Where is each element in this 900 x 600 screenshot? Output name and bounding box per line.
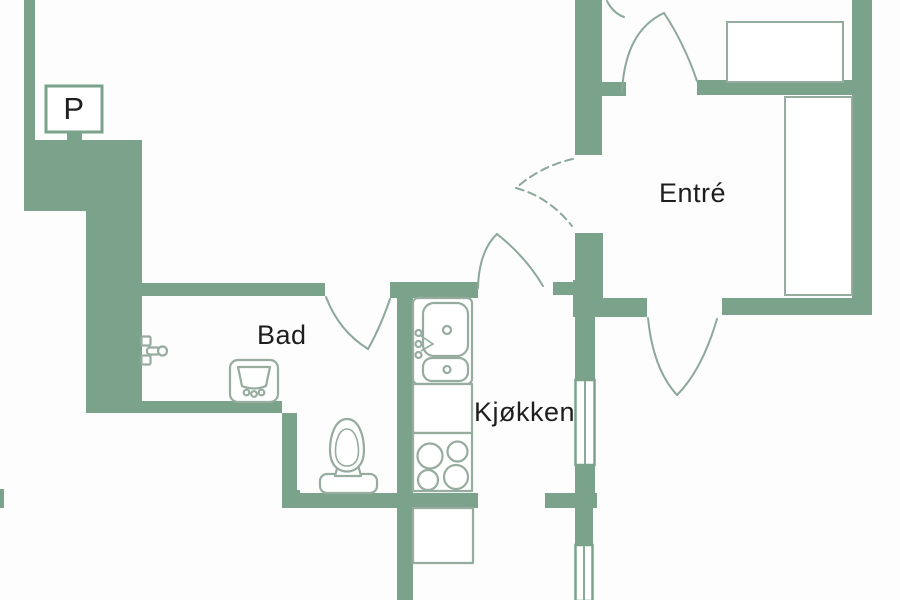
wall-kitchen-east-b [575, 463, 595, 493]
wall-entry-north-vertical [575, 0, 602, 155]
kitchen-door-icon [478, 234, 543, 288]
stove-burner [444, 465, 468, 489]
wardrobe-top-room-icon [727, 22, 843, 82]
lower-counter-icon [413, 508, 473, 563]
stove-burner [448, 442, 468, 462]
wall-west-vertical [86, 211, 142, 413]
wall-kitchen-west [397, 296, 413, 600]
wall-bath-top [142, 283, 325, 296]
stove-burner [418, 444, 443, 469]
wall-east [852, 0, 872, 315]
wall-hall-east-upper [575, 233, 603, 280]
wall-kitchen-east-a [575, 317, 595, 383]
toilet-icon [320, 419, 377, 493]
wall-kitchen-top [390, 282, 478, 298]
top-room-door-partial-icon [607, 1, 624, 17]
wall-cross-center [573, 280, 603, 317]
floor-plan-drawing [0, 0, 900, 600]
wall-cross-left-arm [553, 282, 573, 295]
stove-icon [413, 433, 472, 491]
washbasin-icon [230, 360, 278, 402]
kitchen-sink-icon [413, 298, 472, 384]
wall-south [282, 493, 478, 508]
room-label-kitchen: Kjøkken [474, 397, 575, 428]
wall-kitchen-east-c [575, 493, 593, 546]
room-label-entrance: Entré [659, 178, 726, 209]
entry-door-icon [622, 13, 697, 92]
stove-burner [418, 470, 438, 490]
floor-plan: P Bad Kjøkken Entré [0, 0, 900, 600]
wardrobe-entrance-icon [785, 97, 852, 295]
wall-left-strip [24, 0, 35, 141]
bathroom-door-icon [326, 297, 390, 349]
shower-mixer-icon [142, 337, 168, 365]
wall-entre-bottom [722, 298, 872, 315]
kitchen-east-window-lower [576, 545, 593, 600]
south-room-door-icon [648, 318, 717, 395]
kitchen-counter-icon [413, 384, 472, 433]
wall-edge-stub-left [0, 489, 4, 508]
parking-sign-label: P [46, 86, 102, 132]
room-label-bathroom: Bad [257, 320, 307, 351]
wall-left-block [24, 140, 142, 211]
wall-cross-right-arm [603, 298, 647, 317]
kitchen-east-window-upper [576, 380, 595, 465]
hall-door-dashed-icon [516, 159, 573, 226]
